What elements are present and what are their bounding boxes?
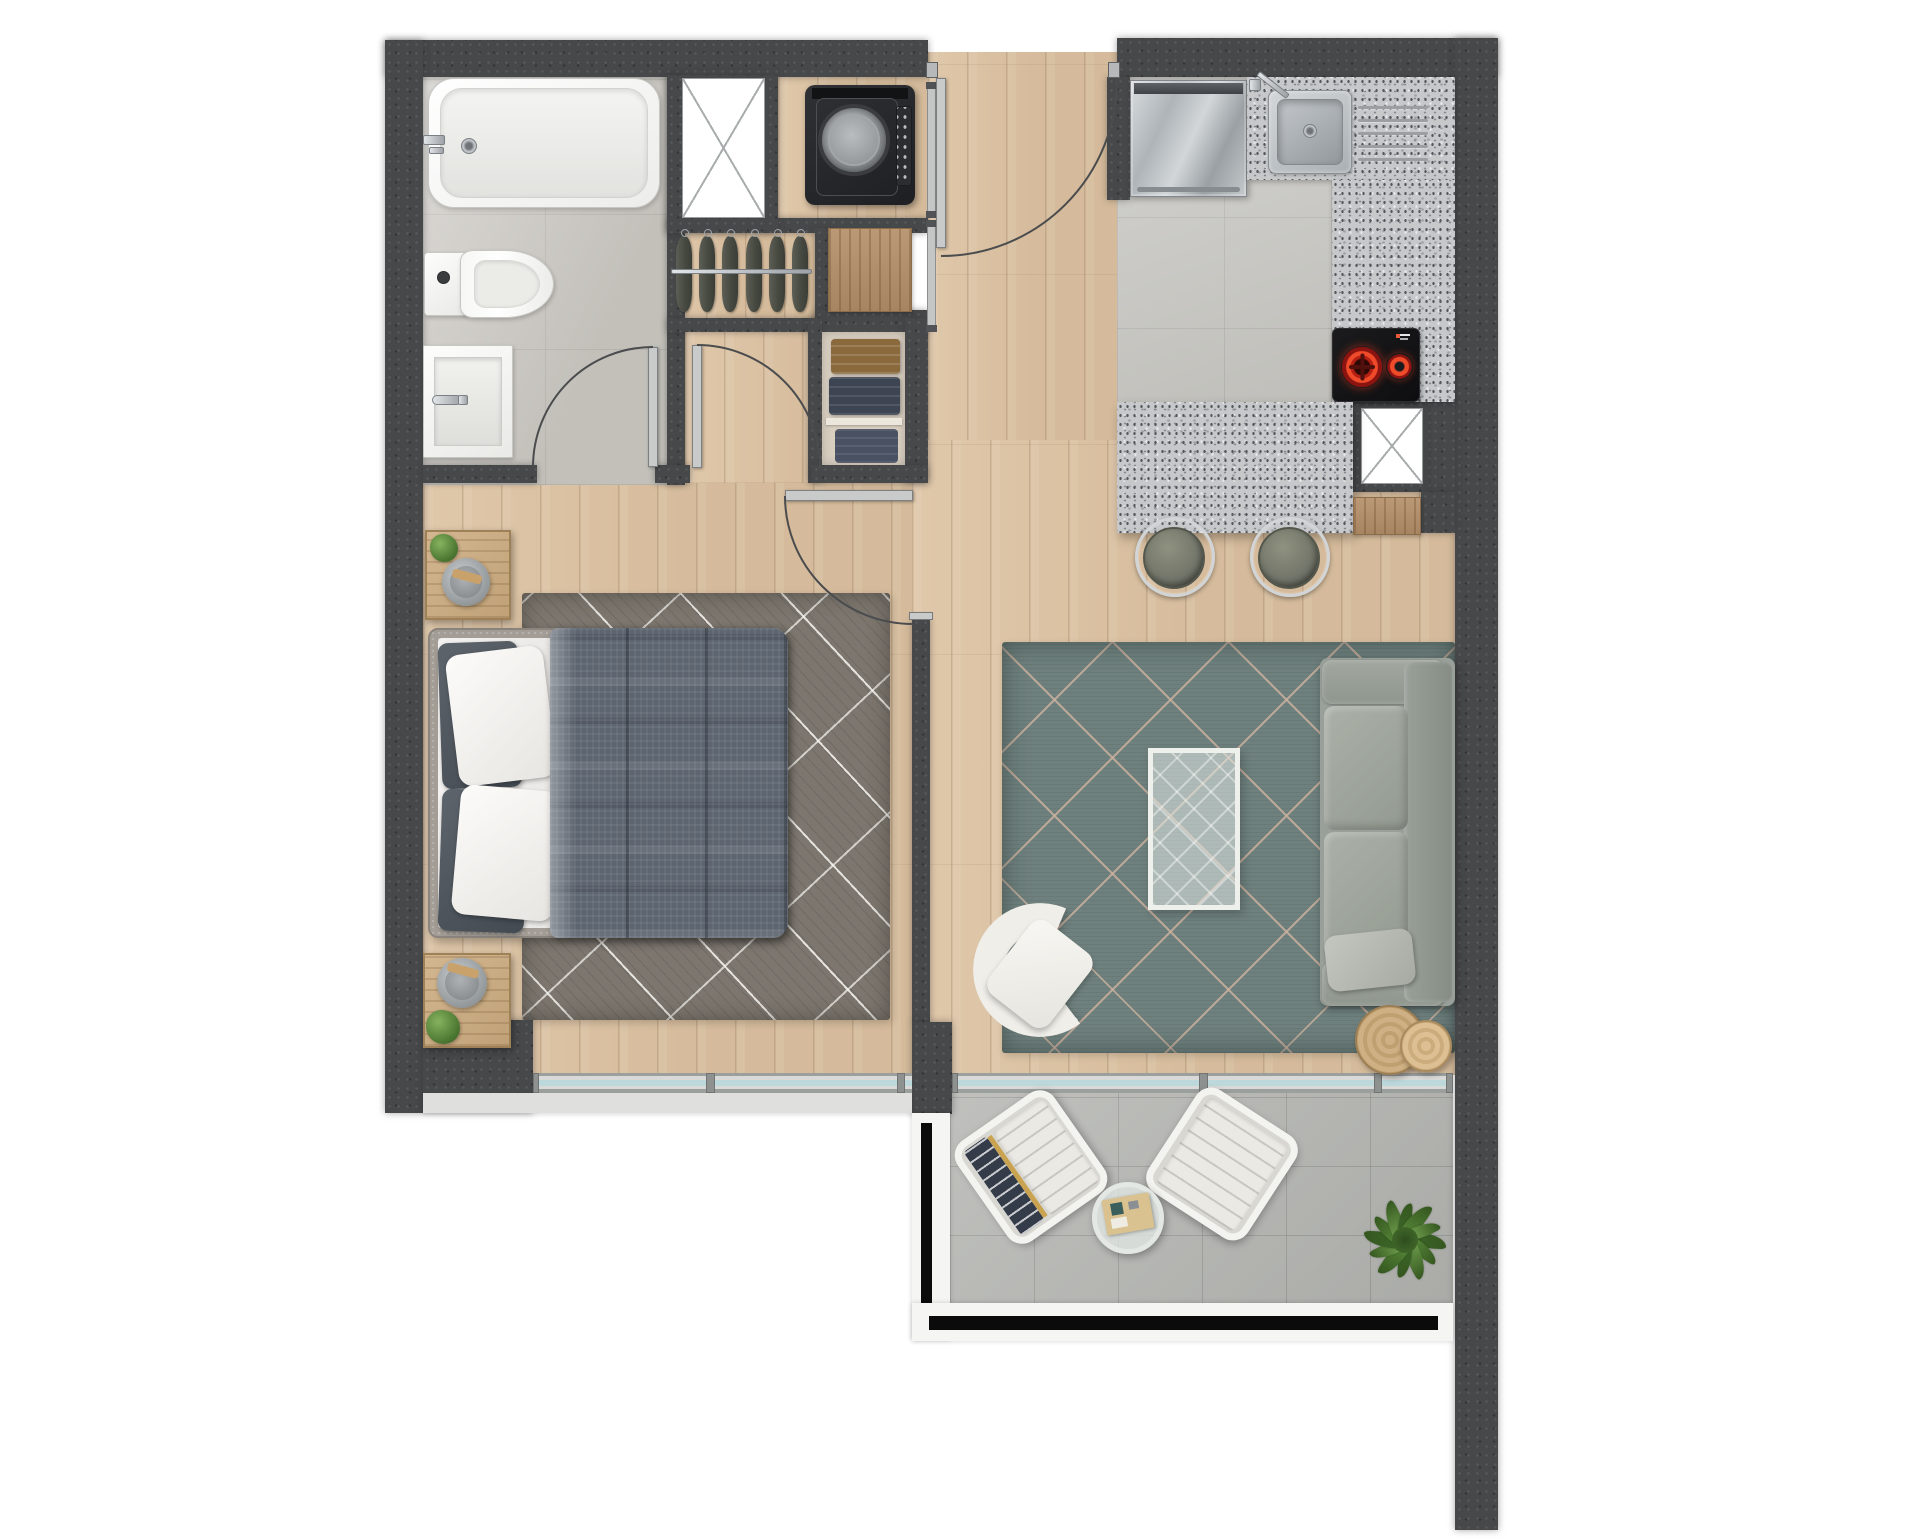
drainboard-groove-5 <box>1358 158 1428 161</box>
bedroom-door-1 <box>692 345 702 468</box>
balcony-rail-left-glass <box>921 1123 932 1333</box>
cooktop-controls <box>1396 333 1414 342</box>
duct-shaft-2 <box>1361 408 1423 484</box>
closet-rod <box>671 269 812 274</box>
shaft2-right-wall <box>1431 400 1455 492</box>
bar-stool-1-seat <box>1143 527 1205 589</box>
sink-faucet-base <box>1249 79 1261 91</box>
clothes-stack-gray <box>835 429 898 463</box>
partition-wall <box>912 618 930 1024</box>
entry-door <box>936 78 946 248</box>
kitchen-island <box>1117 402 1353 533</box>
tub-drain <box>461 138 477 154</box>
bedroom-door-wall <box>812 465 928 483</box>
washer-drum-inner <box>828 114 880 166</box>
toilet-bowl-inner <box>474 260 540 308</box>
bedroom-window-divider-3 <box>897 1073 905 1093</box>
drainboard-groove-1 <box>1358 106 1428 109</box>
shelf-edge <box>826 418 902 425</box>
top-wall-right <box>1117 38 1498 77</box>
left-wall <box>385 40 423 1113</box>
bedroom-sill <box>423 1093 912 1113</box>
laundry-sliding-track <box>927 84 936 216</box>
drainboard-groove-3 <box>1358 132 1428 135</box>
tub-spout <box>429 147 444 154</box>
side-table-small <box>1400 1020 1452 1072</box>
living-window-divider-4 <box>1446 1073 1453 1093</box>
hanger-2 <box>699 236 715 312</box>
pillow-white-2 <box>451 784 564 922</box>
entry-jamb-left <box>926 62 938 78</box>
hallway-floor <box>928 52 1117 485</box>
nightstand-bottom-plant <box>426 1010 460 1044</box>
shelf-left-wall <box>808 318 822 483</box>
burner-small <box>1386 353 1413 380</box>
burner-large <box>1341 346 1383 388</box>
floor-plan <box>0 0 1920 1539</box>
right-wall <box>1455 38 1498 1530</box>
hanger-5 <box>769 236 785 312</box>
sofa-seat-cushion-1 <box>1324 706 1408 830</box>
nightstand-top-plant <box>430 534 458 562</box>
bar-stool-2-seat <box>1258 527 1320 589</box>
sofa-throw-pillow <box>1323 928 1416 993</box>
pillow-white-1 <box>444 645 557 788</box>
hanger-6 <box>792 236 808 312</box>
living-window-divider-3 <box>1374 1073 1382 1093</box>
balcony-rail-bottom-glass <box>929 1316 1438 1330</box>
vanity-faucet-knob <box>458 395 468 405</box>
tub-faucet <box>423 135 445 145</box>
closet-cabinet <box>828 228 912 312</box>
bathroom-door-wall <box>423 465 537 483</box>
sink-drain <box>1303 124 1317 138</box>
closet-hangers <box>676 236 808 312</box>
hanger-1 <box>676 236 692 312</box>
shaft2-below-wall <box>1421 492 1455 533</box>
entry-jamb-right <box>1108 62 1120 78</box>
duct-shaft-1 <box>682 78 765 218</box>
closet-sliding-track <box>927 222 936 330</box>
washer-control-panel <box>896 106 912 186</box>
refrigerator <box>1130 80 1247 197</box>
closet-bottom-wall <box>667 318 815 332</box>
hanger-3 <box>722 236 738 312</box>
top-wall-left <box>385 40 928 77</box>
partition-cap <box>909 612 933 620</box>
duvet <box>550 628 788 938</box>
drainboard-groove-4 <box>1358 145 1428 148</box>
balcony-plant-core <box>1392 1227 1418 1253</box>
clothes-stack-navy <box>829 377 900 415</box>
bathroom-door <box>648 347 658 467</box>
coffee-table <box>1148 748 1240 910</box>
refrigerator-handle <box>1137 187 1240 192</box>
closet-divider-wall <box>815 228 828 320</box>
shelf-right-wall <box>905 318 928 483</box>
bedroom-door-2 <box>785 490 913 501</box>
living-window-divider-1 <box>952 1073 958 1093</box>
window-pillar <box>912 1022 952 1114</box>
door-stub-wall <box>655 465 690 483</box>
fridge-nook-wall <box>1107 77 1130 200</box>
toilet-flush-button <box>437 271 450 284</box>
bedroom-window-divider-1 <box>533 1073 539 1093</box>
drainboard-groove-2 <box>1358 119 1428 122</box>
clothes-stack-brown <box>831 339 900 374</box>
duvet-fold <box>550 628 576 938</box>
refrigerator-vent <box>1134 83 1243 94</box>
bedroom-window <box>533 1073 912 1093</box>
bedroom-window-divider-2 <box>706 1073 715 1093</box>
undercounter-cabinet <box>1353 497 1421 535</box>
hanger-4 <box>746 236 762 312</box>
